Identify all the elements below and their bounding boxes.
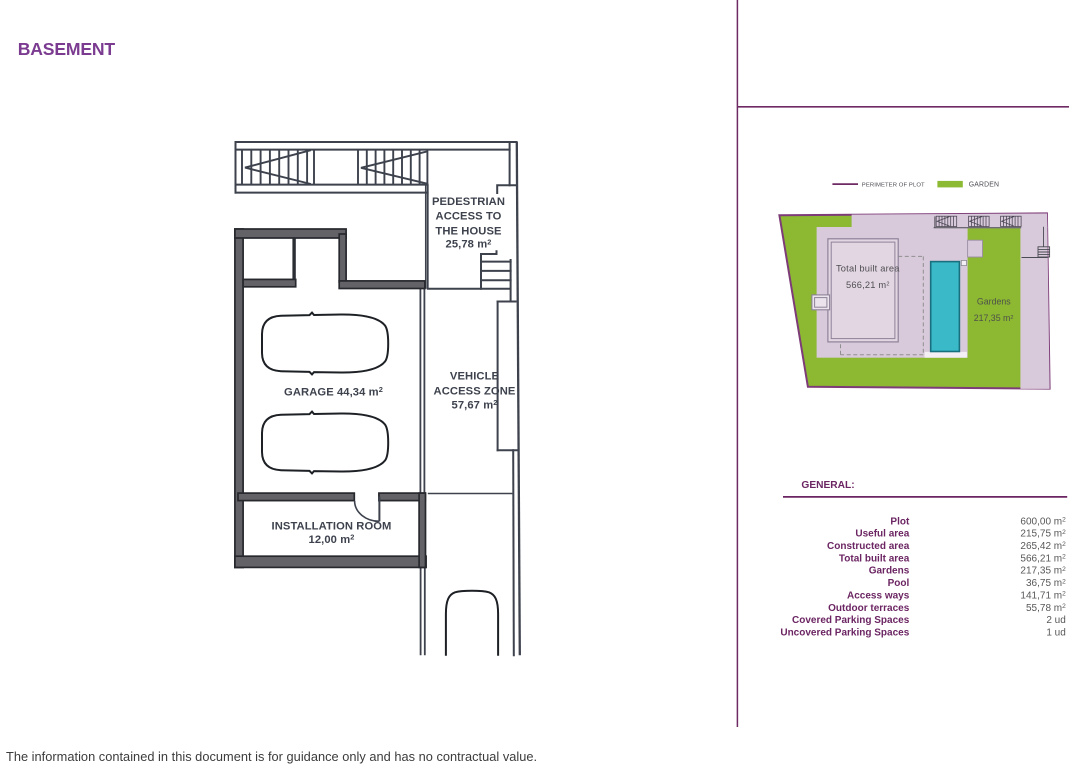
svg-text:Total built area: Total built area	[836, 263, 900, 273]
svg-text:566,21 m2: 566,21 m2	[846, 280, 890, 290]
svg-text:THE HOUSE: THE HOUSE	[435, 225, 502, 237]
svg-text:Covered Parking Spaces: Covered Parking Spaces	[792, 615, 910, 626]
svg-text:PERIMETER OF PLOT: PERIMETER OF PLOT	[862, 183, 925, 189]
svg-text:217,35 m2: 217,35 m2	[974, 313, 1014, 323]
svg-text:55,78 m2: 55,78 m2	[1026, 603, 1066, 614]
svg-text:GENERAL:: GENERAL:	[801, 480, 854, 491]
svg-text:INSTALLATION ROOM: INSTALLATION ROOM	[272, 520, 392, 532]
svg-text:GARDEN: GARDEN	[969, 182, 999, 189]
svg-text:25,78 m2: 25,78 m2	[446, 237, 492, 250]
svg-text:Constructed area: Constructed area	[827, 541, 910, 552]
svg-text:265,42 m2: 265,42 m2	[1020, 541, 1066, 552]
svg-text:GARAGE 44,34 m2: GARAGE 44,34 m2	[284, 385, 383, 398]
svg-text:PEDESTRIAN: PEDESTRIAN	[432, 196, 505, 208]
svg-text:1 ud: 1 ud	[1046, 628, 1065, 639]
svg-text:141,71 m2: 141,71 m2	[1020, 590, 1066, 601]
svg-text:Gardens: Gardens	[869, 566, 910, 577]
svg-text:566,21 m2: 566,21 m2	[1020, 553, 1066, 564]
svg-text:217,35 m2: 217,35 m2	[1020, 566, 1066, 577]
svg-text:Access ways: Access ways	[847, 590, 910, 601]
svg-text:ACCESS ZONE: ACCESS ZONE	[434, 385, 516, 397]
svg-text:Useful area: Useful area	[855, 529, 909, 540]
svg-text:Total built area: Total built area	[839, 553, 910, 564]
svg-text:Pool: Pool	[888, 578, 910, 589]
svg-text:ACCESS TO: ACCESS TO	[436, 211, 502, 223]
svg-text:VEHICLE: VEHICLE	[450, 370, 500, 382]
svg-text:Outdoor terraces: Outdoor terraces	[828, 603, 910, 614]
svg-text:Plot: Plot	[890, 516, 910, 527]
svg-text:The information contained in t: The information contained in this docume…	[6, 749, 537, 764]
svg-text:Gardens: Gardens	[977, 297, 1011, 307]
svg-text:12,00 m2: 12,00 m2	[309, 533, 355, 546]
svg-text:Uncovered Parking Spaces: Uncovered Parking Spaces	[780, 628, 909, 639]
svg-text:36,75 m2: 36,75 m2	[1026, 578, 1066, 589]
svg-text:2 ud: 2 ud	[1046, 615, 1065, 626]
svg-text:57,67 m2: 57,67 m2	[452, 398, 498, 411]
svg-text:BASEMENT: BASEMENT	[18, 39, 116, 59]
svg-text:600,00 m2: 600,00 m2	[1020, 516, 1066, 527]
svg-text:215,75 m2: 215,75 m2	[1020, 529, 1066, 540]
